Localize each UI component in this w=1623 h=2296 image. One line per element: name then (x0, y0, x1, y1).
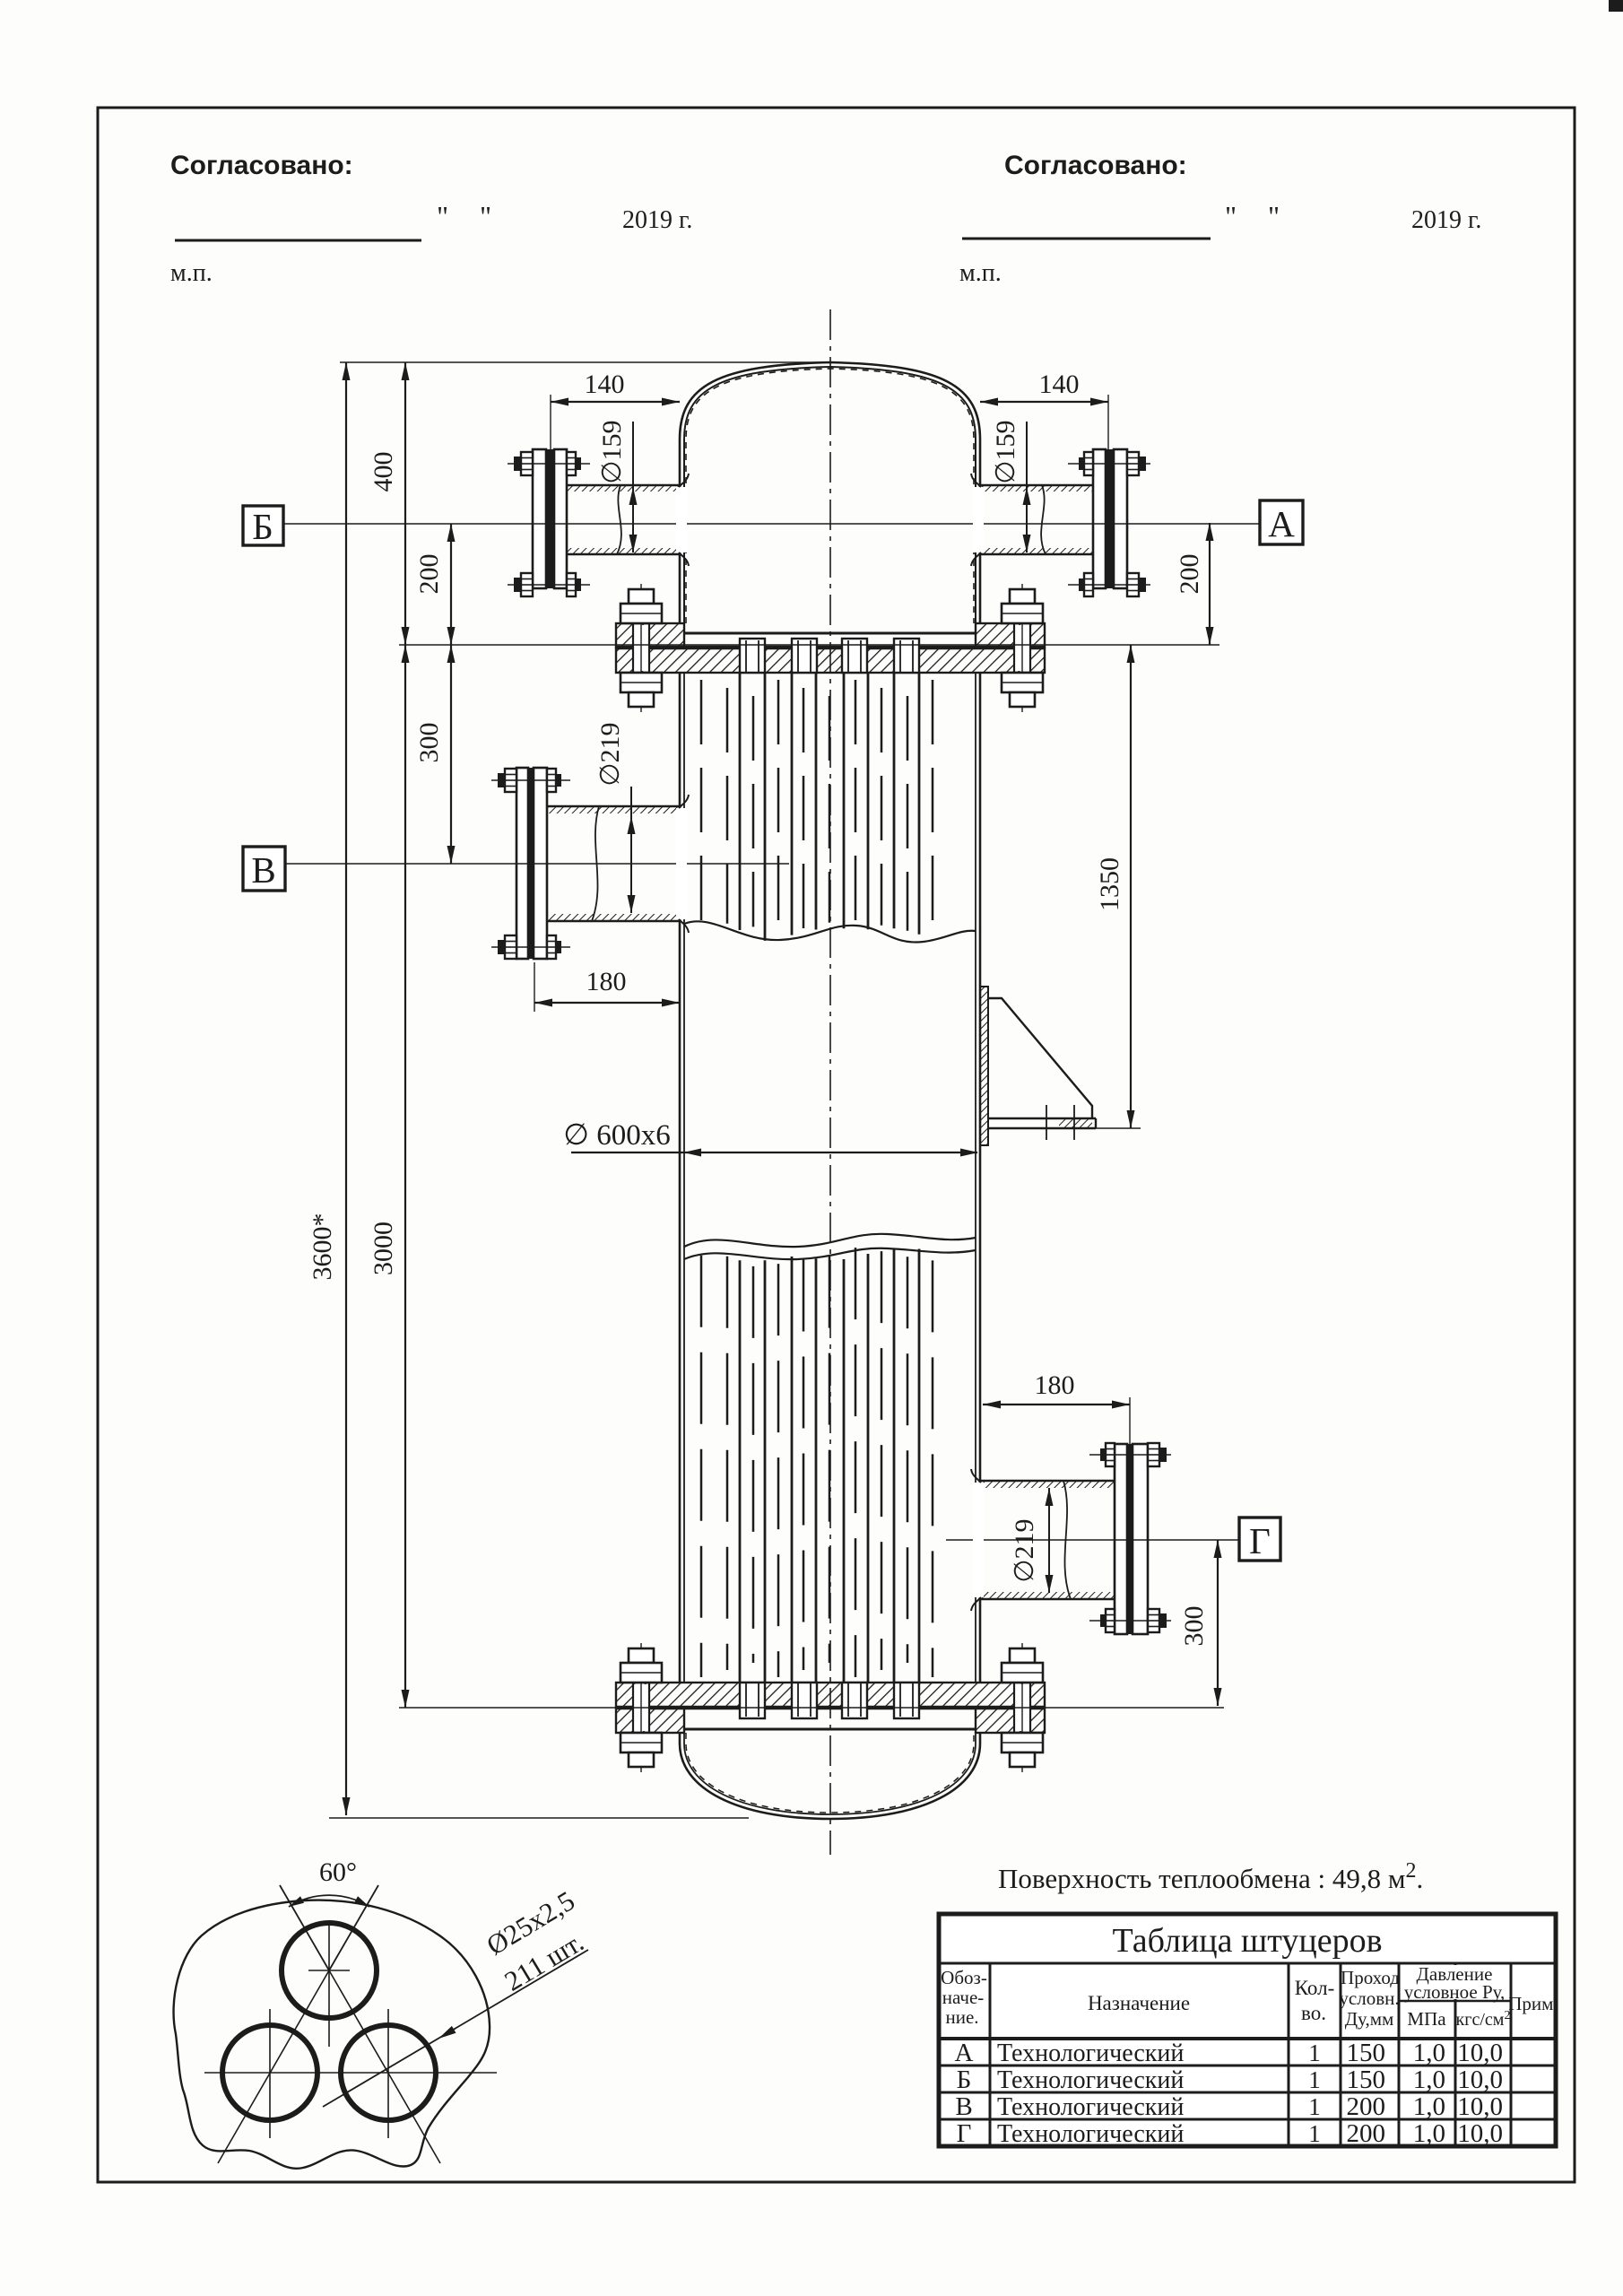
svg-text:Согласовано:: Согласовано: (1004, 151, 1187, 180)
svg-text:В: В (955, 2092, 972, 2121)
svg-text:Технологический: Технологический (997, 2120, 1184, 2148)
svg-text:1: 1 (1308, 2066, 1321, 2093)
svg-text:300: 300 (414, 723, 444, 763)
svg-text:м.п.: м.п. (170, 259, 213, 287)
svg-text:Согласовано:: Согласовано: (170, 151, 353, 180)
svg-text:2019 г.: 2019 г. (1411, 206, 1481, 234)
svg-text:180: 180 (586, 967, 627, 996)
svg-text:": " (480, 200, 491, 232)
svg-text:200: 200 (1175, 554, 1204, 595)
svg-text:Таблица штуцеров: Таблица штуцеров (1112, 1922, 1382, 1960)
svg-text:Проход: Проход (1341, 1967, 1400, 1988)
svg-text:во.: во. (1301, 2002, 1326, 2024)
svg-text:3600*: 3600* (308, 1213, 337, 1281)
svg-text:Г: Г (957, 2119, 972, 2148)
svg-text:400: 400 (369, 452, 398, 492)
svg-text:3000: 3000 (369, 1222, 398, 1275)
svg-text:м.п.: м.п. (959, 259, 1002, 287)
svg-text:условное Ру,: условное Ру, (1404, 1981, 1506, 2003)
svg-text:∅159: ∅159 (991, 420, 1020, 483)
svg-text:1350: 1350 (1095, 857, 1124, 911)
svg-text:140: 140 (585, 370, 625, 399)
svg-text:условн.: условн. (1339, 1987, 1399, 2009)
svg-text:Поверхность теплообмена : 49,8: Поверхность теплообмена : 49,8 м2. (998, 1859, 1423, 1894)
svg-text:∅219: ∅219 (1010, 1518, 1039, 1582)
svg-text:Обоз-: Обоз- (941, 1967, 987, 1988)
svg-text:Технологический: Технологический (997, 2039, 1184, 2067)
svg-text:Назначение: Назначение (1088, 1992, 1190, 2014)
svg-text:В: В (251, 849, 275, 891)
svg-text:Технологический: Технологический (997, 2093, 1184, 2121)
svg-text:ние.: ние. (945, 2006, 978, 2028)
svg-text:Технологический: Технологический (997, 2066, 1184, 2094)
svg-text:1,0: 1,0 (1413, 2119, 1445, 2148)
svg-text:1,0: 1,0 (1413, 2066, 1445, 2094)
svg-text:200: 200 (1347, 2119, 1386, 2148)
svg-text:Г: Г (1249, 1520, 1271, 1561)
svg-text:Прим.: Прим. (1508, 1993, 1558, 2014)
svg-text:200: 200 (414, 554, 444, 595)
svg-text:МПа: МПа (1407, 2008, 1446, 2030)
svg-text:1: 1 (1308, 2093, 1321, 2120)
svg-text:300: 300 (1179, 1606, 1209, 1647)
svg-text:А: А (1268, 503, 1295, 544)
svg-text:180: 180 (1035, 1370, 1075, 1400)
svg-text:наче-: наче- (942, 1987, 985, 2008)
svg-text:60°: 60° (319, 1857, 357, 1887)
svg-text:10,0: 10,0 (1457, 2066, 1503, 2094)
svg-text:10,0: 10,0 (1457, 2119, 1503, 2148)
svg-text:Б: Б (957, 2066, 972, 2094)
svg-text:140: 140 (1039, 370, 1080, 399)
svg-text:1,0: 1,0 (1413, 2092, 1445, 2121)
svg-text:150: 150 (1347, 2066, 1386, 2094)
svg-text:∅219: ∅219 (595, 722, 625, 786)
svg-text:Кол-: Кол- (1295, 1977, 1335, 1999)
svg-text:": " (1225, 200, 1237, 232)
svg-text:200: 200 (1347, 2092, 1386, 2121)
svg-text:": " (1268, 200, 1280, 232)
svg-text:кгс/см2: кгс/см2 (1456, 2009, 1511, 2030)
svg-text:А: А (955, 2039, 974, 2067)
svg-text:1: 1 (1308, 2120, 1321, 2147)
svg-text:∅159: ∅159 (597, 420, 627, 483)
svg-text:2019 г.: 2019 г. (622, 206, 692, 234)
svg-text:10,0: 10,0 (1457, 2092, 1503, 2121)
svg-text:150: 150 (1347, 2039, 1386, 2067)
svg-text:Б: Б (252, 506, 273, 547)
svg-text:Ду,мм: Ду,мм (1345, 2008, 1394, 2030)
svg-text:": " (437, 200, 448, 232)
svg-text:1,0: 1,0 (1413, 2039, 1445, 2067)
svg-text:10,0: 10,0 (1457, 2039, 1503, 2067)
svg-text:∅ 600x6: ∅ 600x6 (563, 1119, 671, 1152)
svg-text:1: 1 (1308, 2039, 1321, 2066)
